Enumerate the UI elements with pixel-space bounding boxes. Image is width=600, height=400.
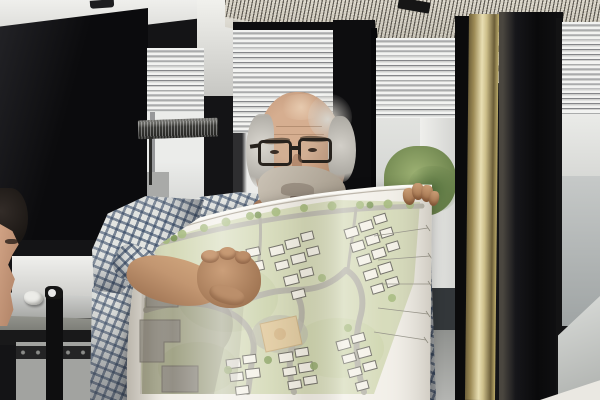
tape-roll: [48, 289, 56, 297]
forehead-wrinkle: [274, 134, 324, 135]
brass-support-pole: [465, 14, 499, 400]
right-hand-finger: [201, 250, 219, 263]
paper-scrap: [24, 291, 43, 305]
tape-dispenser: [45, 286, 63, 299]
right-hand-finger: [235, 251, 251, 264]
right-hand-finger: [219, 247, 236, 260]
window-far-right-blinds: [562, 22, 600, 114]
table-leg: [46, 296, 63, 400]
window-right-blinds: [376, 38, 456, 118]
window-far-right-building: [562, 114, 600, 176]
colleague-eye: [5, 239, 18, 244]
eye-right: [308, 148, 317, 152]
eye-left: [270, 150, 279, 154]
black-column-right: [499, 12, 563, 400]
forehead-wrinkle: [276, 126, 322, 127]
glasses-bridge: [290, 146, 300, 150]
photo-scene: [0, 0, 600, 400]
window-left-blinds: [147, 48, 204, 112]
